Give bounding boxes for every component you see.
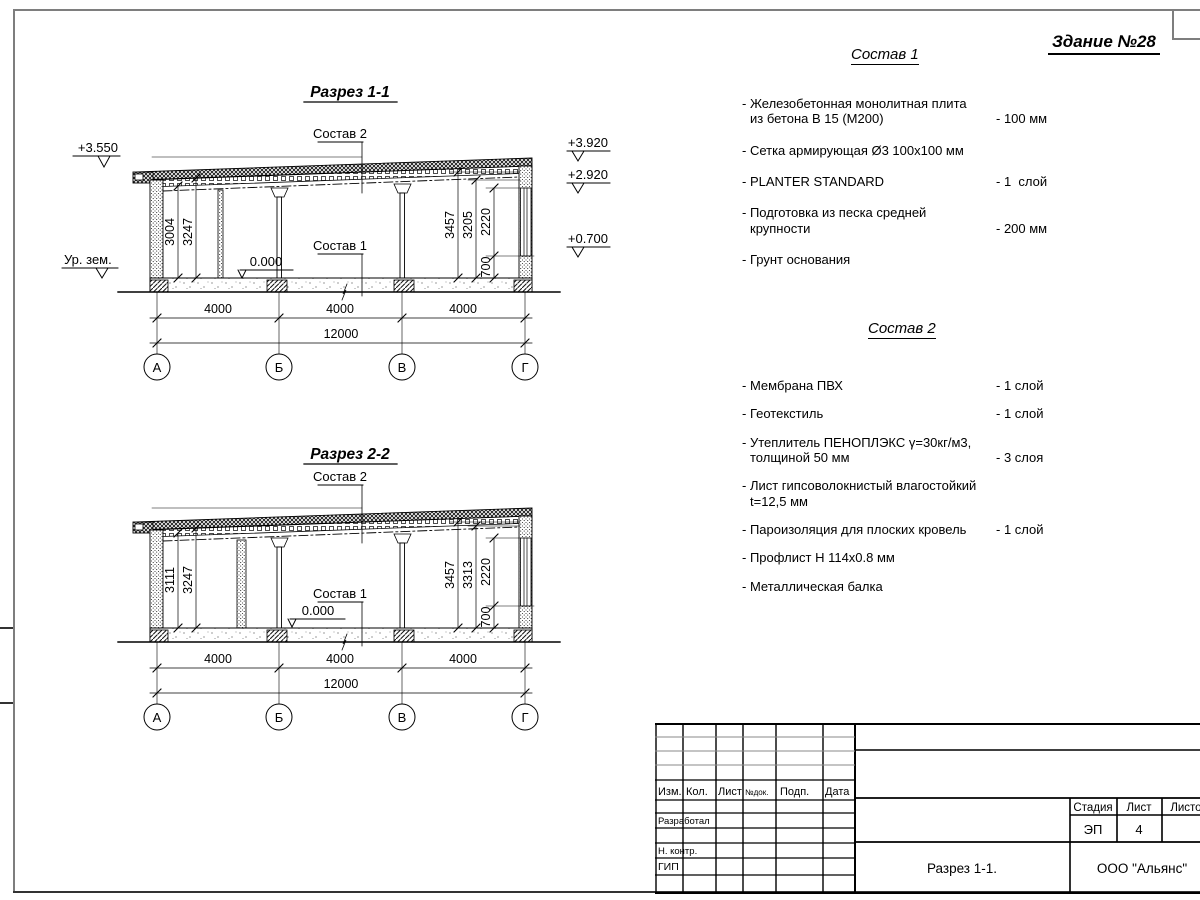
section-title: Разрез 2-2 xyxy=(310,446,390,463)
item-name: - Мембрана ПВХ xyxy=(742,378,996,393)
level-arrow-icon xyxy=(572,151,584,161)
drawing-sheet: Здание №28 Состав 1 - Железобетонная мон… xyxy=(0,0,1200,900)
signature-rows: Разработал Н. контр. ГИП xyxy=(658,816,710,873)
elevation-mark-left: +3.550 xyxy=(73,140,120,167)
column-v xyxy=(394,184,411,278)
axis-label: В xyxy=(398,360,407,375)
total-dim-label: 12000 xyxy=(324,677,359,691)
title-block: Изм. Кол. Лист №док. Подп. Дата Разработ… xyxy=(655,723,1200,894)
layer2-leader: Состав 2 xyxy=(313,469,367,543)
partition-wall xyxy=(237,540,246,628)
dim-label: 3205 xyxy=(461,211,475,239)
list-item: - Утеплитель ПЕНОПЛЭКС γ=30кг/м3, толщин… xyxy=(742,435,1054,466)
left-wall xyxy=(150,180,163,278)
level-arrow-icon xyxy=(572,183,584,193)
span-dim-label: 4000 xyxy=(204,302,232,316)
col-list: Лист xyxy=(718,786,742,798)
item-name: - Утеплитель ПЕНОПЛЭКС γ=30кг/м3, толщин… xyxy=(742,435,996,466)
column-b xyxy=(271,538,288,628)
stage-value: ЭП xyxy=(1084,822,1103,837)
list-item: - Грунт основания xyxy=(742,252,1054,267)
axis-label: Б xyxy=(275,710,284,725)
level-arrow-icon xyxy=(98,156,110,167)
foundation-pad xyxy=(267,630,287,642)
frame-corner-box xyxy=(1172,9,1200,40)
left-wall xyxy=(150,530,163,628)
item-name: - Грунт основания xyxy=(742,252,996,267)
foundation-pad xyxy=(267,280,287,292)
roof xyxy=(133,508,532,541)
list-item: - Геотекстиль- 1 слой xyxy=(742,406,1054,421)
stage-sheet-block: Стадия Лист Листов ЭП 4 xyxy=(1073,802,1200,837)
bottom-dimensions: 4000 4000 4000 12000 А Б В Г xyxy=(144,292,538,380)
dim-label: 700 xyxy=(479,607,493,628)
total-dim-label: 12000 xyxy=(324,327,359,341)
foundation-pad xyxy=(394,280,414,292)
zero-level-label: 0.000 xyxy=(250,254,283,269)
bottom-dimensions: 4000 4000 4000 12000 А Б В Г xyxy=(144,642,538,730)
right-wall xyxy=(519,166,532,278)
elevation-label: +3.550 xyxy=(78,140,118,155)
foundation-pad xyxy=(394,630,414,642)
column-v xyxy=(394,534,411,628)
item-name: - Лист гипсоволокнистый влагостойкий t=1… xyxy=(742,478,996,509)
zero-level-mark: 0.000 xyxy=(288,603,345,627)
item-name: - Подготовка из песка средней крупности xyxy=(742,205,996,236)
list-item: - Пароизоляция для плоских кровель- 1 сл… xyxy=(742,522,1054,537)
dim-label: 700 xyxy=(479,257,493,278)
revision-table-headers: Изм. Кол. Лист №док. Подп. Дата xyxy=(658,786,850,798)
floor xyxy=(118,628,560,650)
layer1-label: Состав 1 xyxy=(313,238,367,253)
list-item: - PLANTER STANDARD- 1 слой xyxy=(742,174,1054,189)
partition-wall xyxy=(218,190,223,278)
section-title: Разрез 1-1 xyxy=(310,84,390,101)
list-item: - Сетка армирующая Ø3 100х100 мм xyxy=(742,143,1054,158)
down-arrow-icon xyxy=(288,619,296,627)
row-nkontr: Н. контр. xyxy=(658,846,697,857)
sostav2-heading: Состав 2 xyxy=(868,320,936,339)
section-1-1-drawing: Разрез 1-1 xyxy=(62,84,610,380)
sheet-value: 4 xyxy=(1135,822,1142,837)
zero-level-mark: 0.000 xyxy=(238,254,293,278)
dim-label: 3457 xyxy=(443,561,457,589)
dim-label: 3111 xyxy=(163,567,177,593)
foundation-pad xyxy=(514,630,532,642)
item-qty: - 200 мм xyxy=(996,221,1056,236)
col-ndok: №док. xyxy=(745,788,768,797)
vertical-dimensions: 3111 3247 3457 3313 2220 700 xyxy=(163,518,534,632)
item-qty: - 100 мм xyxy=(996,111,1056,126)
item-name: - Пароизоляция для плоских кровель xyxy=(742,522,996,537)
dim-label: 2220 xyxy=(479,558,493,586)
sostav2-list: - Мембрана ПВХ- 1 слой - Геотекстиль- 1 … xyxy=(742,378,1054,607)
item-qty: - 3 слоя xyxy=(996,450,1056,465)
elevation-label: +2.920 xyxy=(568,167,608,182)
elevation-label: +3.920 xyxy=(568,135,608,150)
elevation-label: +0.700 xyxy=(568,231,608,246)
sheet-label: Лист xyxy=(1127,802,1153,814)
span-dim-label: 4000 xyxy=(449,302,477,316)
axis-bubbles: А Б В Г xyxy=(144,704,538,730)
item-qty: - 1 слой xyxy=(996,174,1056,189)
foundation-pad xyxy=(514,280,532,292)
doc-title: Разрез 1-1. xyxy=(927,861,997,876)
sostav1-heading: Состав 1 xyxy=(851,46,919,65)
company-name: ООО "Альянс" xyxy=(1097,861,1187,876)
window xyxy=(521,188,532,256)
item-qty: - 1 слой xyxy=(996,406,1056,421)
dim-label: 3247 xyxy=(181,566,195,594)
sostav1-list: - Железобетонная монолитная плита из бет… xyxy=(742,96,1054,283)
span-dim-label: 4000 xyxy=(449,652,477,666)
item-name: - Металлическая балка xyxy=(742,579,996,594)
col-podp: Подп. xyxy=(780,786,809,798)
foundation-pad xyxy=(150,280,168,292)
dim-label: 3004 xyxy=(163,218,177,246)
item-name: - Железобетонная монолитная плита из бет… xyxy=(742,96,996,127)
col-kol: Кол. xyxy=(686,786,708,798)
dim-label: 3313 xyxy=(461,561,475,589)
list-item: - Мембрана ПВХ- 1 слой xyxy=(742,378,1054,393)
sheets-label: Листов xyxy=(1170,802,1200,814)
building-title: Здание №28 xyxy=(1048,32,1160,55)
roof xyxy=(133,157,532,191)
zero-level-label: 0.000 xyxy=(302,603,335,618)
dim-label: 3247 xyxy=(181,218,195,246)
dim-label: 2220 xyxy=(479,208,493,236)
right-wall xyxy=(519,516,532,628)
list-item: - Железобетонная монолитная плита из бет… xyxy=(742,96,1054,127)
sections-canvas: Разрез 1-1 xyxy=(0,0,660,750)
ground-label: Ур. зем. xyxy=(64,252,112,267)
foundation-pad xyxy=(150,630,168,642)
level-arrow-icon xyxy=(96,268,108,278)
window xyxy=(521,538,532,606)
layer2-label: Состав 2 xyxy=(313,126,367,141)
dim-label: 3457 xyxy=(443,211,457,239)
axis-label: Г xyxy=(521,360,528,375)
col-izm: Изм. xyxy=(658,786,682,798)
row-gip: ГИП xyxy=(658,861,679,873)
down-arrow-icon xyxy=(238,270,246,278)
item-name: - PLANTER STANDARD xyxy=(742,174,996,189)
floor xyxy=(118,278,560,300)
axis-label: В xyxy=(398,710,407,725)
section-2-2-drawing: Разрез 2-2 xyxy=(118,446,560,730)
item-qty: - 1 слой xyxy=(996,378,1056,393)
col-data: Дата xyxy=(825,786,850,798)
item-name: - Сетка армирующая Ø3 100х100 мм xyxy=(742,143,996,158)
stage-label: Стадия xyxy=(1073,802,1112,814)
layer2-label: Состав 2 xyxy=(313,469,367,484)
list-item: - Профлист Н 114х0.8 мм xyxy=(742,550,1054,565)
list-item: - Подготовка из песка средней крупности-… xyxy=(742,205,1054,236)
ground-level-mark: Ур. зем. xyxy=(62,252,118,278)
row-razrabotal: Разработал xyxy=(658,816,710,827)
axis-label: А xyxy=(153,710,162,725)
axis-label: Б xyxy=(275,360,284,375)
span-dim-label: 4000 xyxy=(204,652,232,666)
span-dim-label: 4000 xyxy=(326,652,354,666)
level-arrow-icon xyxy=(572,247,584,257)
layer1-label: Состав 1 xyxy=(313,586,367,601)
item-name: - Геотекстиль xyxy=(742,406,996,421)
item-qty: - 1 слой xyxy=(996,522,1056,537)
axis-label: А xyxy=(153,360,162,375)
span-dim-label: 4000 xyxy=(326,302,354,316)
list-item: - Металлическая балка xyxy=(742,579,1054,594)
axis-bubbles: А Б В Г xyxy=(144,354,538,380)
axis-label: Г xyxy=(521,710,528,725)
elevation-marks-right: +3.920 +2.920 +0.700 xyxy=(567,135,610,257)
list-item: - Лист гипсоволокнистый влагостойкий t=1… xyxy=(742,478,1054,509)
item-name: - Профлист Н 114х0.8 мм xyxy=(742,550,996,565)
